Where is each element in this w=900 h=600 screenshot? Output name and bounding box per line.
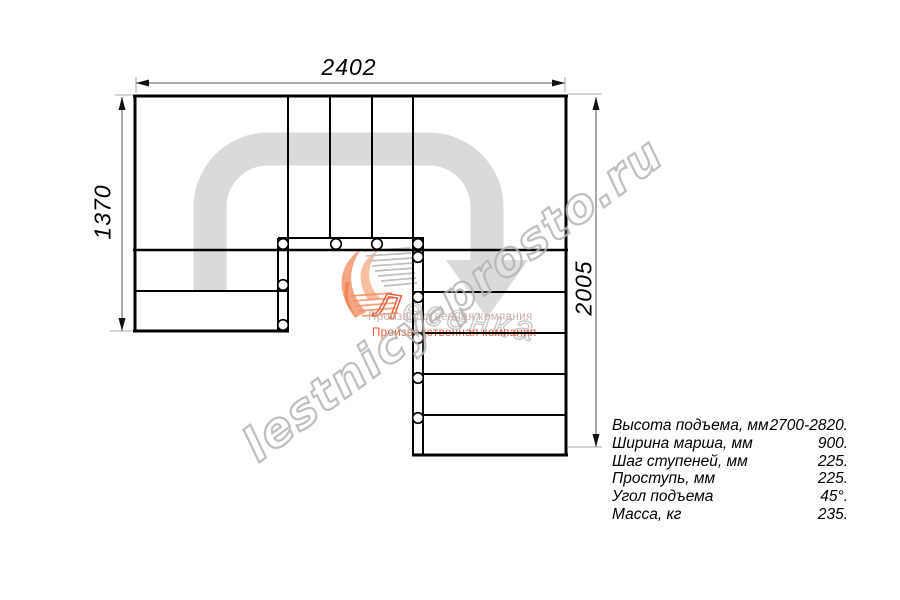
spec-value: 2700-2820. [770,417,848,435]
spec-value: 225. [818,453,848,471]
spec-row-angle: Угол подъема 45°. [612,488,848,506]
spec-label: Высота подъема, мм [612,417,769,435]
site-watermark: lestnicy-prosto.ru [233,126,674,473]
logo-stair-hatch-gray [363,248,417,286]
spec-row-tread: Проступь, мм 225. [612,470,848,488]
dimension-left-value: 1370 [90,184,117,239]
logo-flame-icon [342,248,380,318]
spec-label: Шаг ступеней, мм [612,453,748,471]
spec-row-flight-width: Ширина марша, мм 900. [612,435,848,453]
spec-row-height: Высота подъема, мм 2700-2820. [612,417,848,435]
spec-value: 225. [818,470,848,488]
dimension-right-value: 2005 [571,260,598,315]
spec-table: Высота подъема, мм 2700-2820. Ширина мар… [612,417,848,524]
spec-label: Проступь, мм [612,470,715,488]
spec-value: 45°. [820,488,848,506]
spec-label: Масса, кг [612,506,681,524]
dimension-top-value: 2402 [299,54,399,81]
spec-row-step-pitch: Шаг ступеней, мм 225. [612,453,848,471]
spec-row-mass: Масса, кг 235. [612,506,848,524]
spec-value: 235. [818,506,848,524]
spec-value: 900. [818,435,848,453]
spec-label: Ширина марша, мм [612,435,753,453]
spec-label: Угол подъема [612,488,713,506]
staircase-drawing-page: Лесенка Л Производственная компания Прои… [0,0,900,600]
